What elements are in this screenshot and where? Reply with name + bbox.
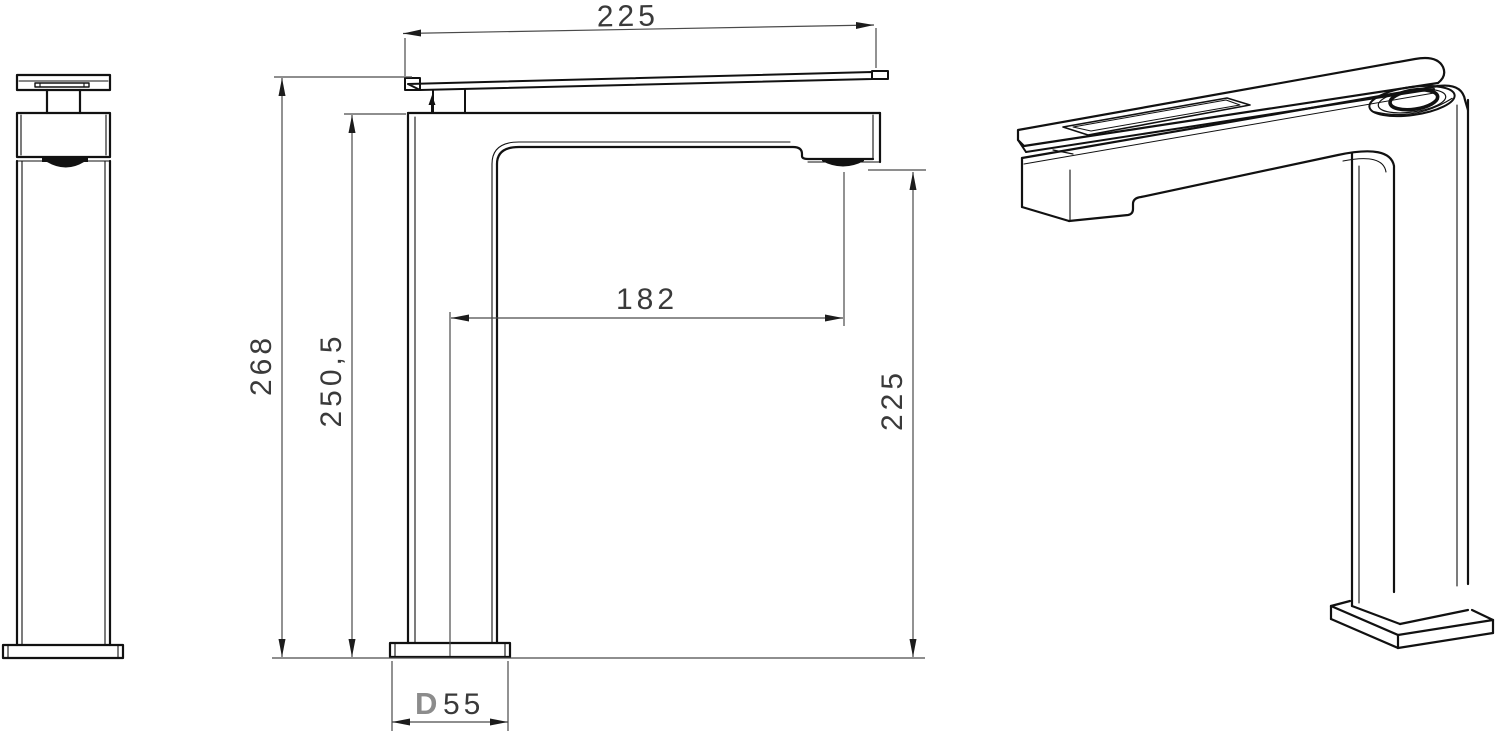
dimension-arrows xyxy=(279,22,917,726)
aerator-lens-side xyxy=(822,158,864,167)
column-base-joint xyxy=(1352,606,1400,624)
arrow xyxy=(279,78,286,96)
arrow xyxy=(490,719,508,726)
handle-recess-front xyxy=(35,83,89,87)
dim-text-base-size: 55 xyxy=(443,688,484,721)
arm-front-bottom-left xyxy=(1022,207,1069,221)
front-view xyxy=(3,75,123,658)
side-view xyxy=(390,71,888,657)
technical-drawing-canvas: 225 268 250,5 182 225 D 55 xyxy=(0,0,1500,735)
column-base-joint xyxy=(1400,610,1468,624)
arm-underside-inner xyxy=(1343,159,1386,172)
base-plate-front xyxy=(3,645,123,658)
arrow xyxy=(910,639,917,657)
body-front xyxy=(17,113,110,157)
dimension-texts: 225 268 250,5 182 225 D 55 xyxy=(245,0,909,721)
base-bottom-right-edge xyxy=(1398,633,1493,648)
arrow xyxy=(403,30,421,37)
dim-text-base-prefix: D xyxy=(415,686,439,721)
dim-text-spout-width: 225 xyxy=(597,0,660,34)
arrow xyxy=(910,172,917,190)
base-bottom-left-edge xyxy=(1331,619,1398,648)
perspective-view xyxy=(1018,58,1493,648)
base-back-left-seg xyxy=(1331,601,1350,606)
arm-underside xyxy=(1069,151,1394,592)
dim-text-spout-reach: 182 xyxy=(616,283,678,316)
handle-right-cap xyxy=(872,71,888,79)
arrow xyxy=(856,22,874,29)
arrow xyxy=(392,719,410,726)
dimensions xyxy=(272,25,926,731)
stem-pin xyxy=(429,95,436,112)
dim-text-outlet-height: 225 xyxy=(876,369,909,431)
handle-lever xyxy=(408,72,872,90)
dim-text-total-height: 268 xyxy=(245,334,278,396)
spout-underside-inner xyxy=(492,142,790,164)
aerator-bar xyxy=(42,157,88,162)
arrow xyxy=(825,315,843,322)
arrow xyxy=(349,115,356,133)
dim-text-body-height: 250,5 xyxy=(315,332,348,427)
base-back-right-seg xyxy=(1472,610,1493,620)
aerator-lens-front xyxy=(47,162,84,168)
arrow xyxy=(349,639,356,657)
arrow xyxy=(451,315,469,322)
arrow xyxy=(279,639,286,657)
